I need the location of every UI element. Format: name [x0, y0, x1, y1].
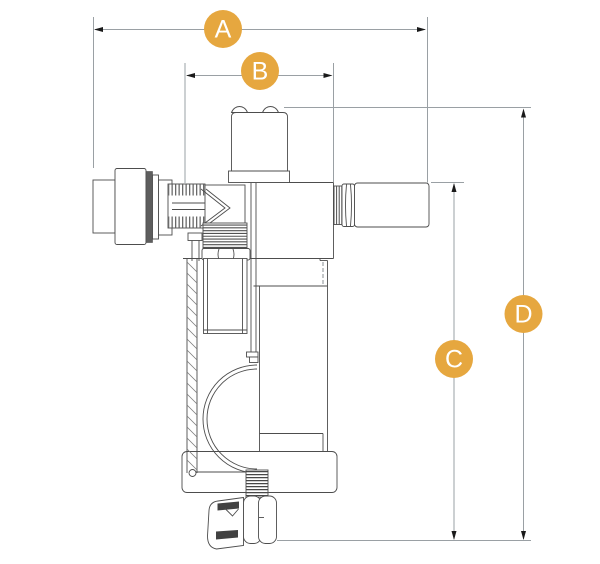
- hatch-line: [187, 438, 197, 448]
- inlet-stub: [93, 180, 115, 233]
- outlet-thread-band: [334, 186, 343, 225]
- cartridge-outline: [204, 259, 248, 334]
- union-ring: [153, 175, 159, 239]
- hatch-line: [187, 372, 197, 382]
- device-drawing: [93, 107, 429, 550]
- arrow-a-left-icon: [94, 27, 103, 32]
- cap-bump-right: [263, 107, 279, 113]
- hatch-line: [187, 262, 197, 272]
- arrow-b-left-icon: [186, 73, 195, 78]
- hatch-line: [187, 350, 197, 360]
- marker-c-label: C: [445, 346, 463, 374]
- dimension-marker-a: A: [204, 10, 242, 48]
- dimension-marker-b: B: [241, 52, 279, 90]
- hatch-line: [187, 339, 197, 349]
- tube-tab: [250, 357, 259, 363]
- arrow-a-right-icon: [417, 27, 426, 32]
- valve-technical-drawing: A B C D: [0, 0, 600, 564]
- filter-cartridge: [204, 259, 248, 334]
- top-cap: [229, 107, 290, 183]
- union-thread-band: [146, 172, 153, 243]
- hatch-line: [187, 427, 197, 437]
- marker-a-label: A: [215, 16, 232, 44]
- hatch-line: [187, 284, 197, 294]
- dimension-marker-c: C: [435, 340, 473, 378]
- inlet-fitting: [93, 169, 172, 245]
- wall-foot: [189, 470, 196, 477]
- hatch-line: [187, 361, 197, 371]
- body-column: [254, 259, 328, 452]
- hatch-line: [187, 317, 197, 327]
- hatch-line: [187, 295, 197, 305]
- marker-b-label: B: [252, 58, 269, 86]
- arrow-d-top-icon: [521, 109, 526, 118]
- arrow-b-right-icon: [324, 73, 333, 78]
- dimension-marker-d: D: [505, 295, 543, 333]
- side-bracket: [188, 233, 202, 241]
- sectioned-wall: [187, 259, 197, 477]
- outlet-fitting: [334, 183, 430, 227]
- hatch-line: [187, 405, 197, 415]
- hatch-line: [187, 394, 197, 404]
- hatch-line: [187, 416, 197, 426]
- arrow-d-bottom-icon: [521, 531, 526, 540]
- tube-tab: [247, 352, 259, 357]
- knob-barrel-right: [259, 496, 277, 544]
- cap-bump-left: [232, 107, 248, 113]
- cap-body: [232, 113, 288, 172]
- screenshot-canvas: A B C D: [0, 0, 600, 564]
- arrow-c-top-icon: [452, 183, 457, 192]
- hatch-line: [187, 273, 197, 283]
- hatch-line: [187, 306, 197, 316]
- arrow-c-bottom-icon: [452, 531, 457, 540]
- hatch-line: [187, 328, 197, 338]
- hatch-line: [187, 383, 197, 393]
- marker-d-label: D: [514, 301, 532, 329]
- outlet-pipe: [355, 183, 430, 227]
- union-nut: [115, 169, 146, 245]
- cap-base-plate: [229, 171, 290, 183]
- outlet-nut: [342, 184, 355, 227]
